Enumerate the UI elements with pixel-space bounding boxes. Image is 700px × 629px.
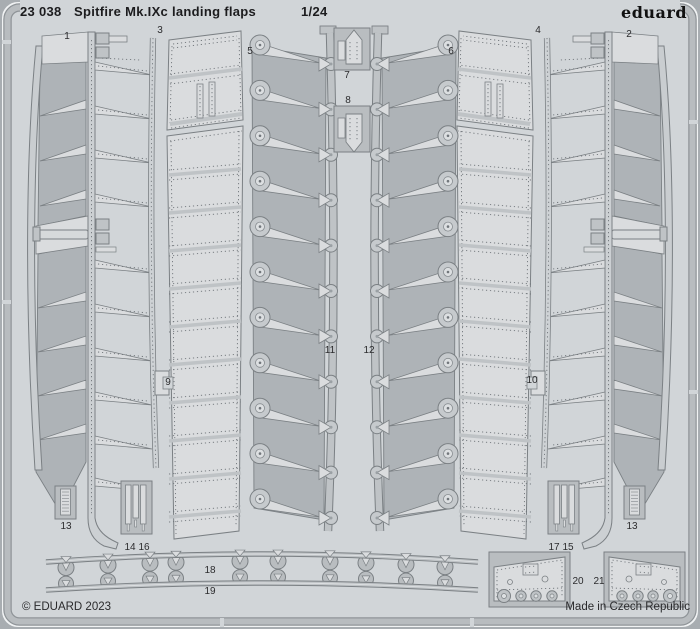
made-in-text: Made in Czech Republic bbox=[565, 601, 690, 613]
part-number-label: 9 bbox=[165, 378, 171, 388]
part-number-label: 11 bbox=[325, 346, 335, 356]
part-number-label: 20 bbox=[572, 577, 583, 587]
brand-logo: eduard bbox=[621, 3, 687, 22]
part-number-label: 2 bbox=[626, 30, 632, 40]
part-number-label: 5 bbox=[247, 47, 253, 57]
pe-sheet: 23 038 Spitfire Mk.IXc landing flaps 1/2… bbox=[0, 0, 700, 629]
scale-badge: 1/24 bbox=[301, 4, 328, 19]
part-number-label: 3 bbox=[157, 26, 163, 36]
part-number-label: 4 bbox=[535, 26, 541, 36]
part-number-label: 6 bbox=[448, 47, 454, 57]
part-number-label: 10 bbox=[526, 376, 537, 386]
part-number-label: 15 bbox=[562, 543, 573, 553]
part-number-label: 17 bbox=[548, 543, 559, 553]
part-number-label: 13 bbox=[626, 522, 637, 532]
part-number-label: 19 bbox=[204, 587, 215, 597]
part-number-label: 16 bbox=[138, 543, 149, 553]
part-number-label: 13 bbox=[60, 522, 71, 532]
sheet-title: Spitfire Mk.IXc landing flaps bbox=[74, 4, 256, 19]
catalog-number: 23 038 bbox=[20, 4, 62, 19]
part-number-label: 7 bbox=[344, 71, 350, 81]
copyright-text: © EDUARD 2023 bbox=[22, 601, 111, 613]
part-number-label: 1 bbox=[64, 32, 70, 42]
sheet-header: 23 038 Spitfire Mk.IXc landing flaps 1/2… bbox=[0, 4, 700, 24]
part-number-label: 21 bbox=[593, 577, 604, 587]
part-number-label: 8 bbox=[345, 96, 351, 106]
part-number-label: 18 bbox=[204, 566, 215, 576]
part-number-label: 14 bbox=[124, 543, 135, 553]
part-number-label: 12 bbox=[363, 346, 374, 356]
